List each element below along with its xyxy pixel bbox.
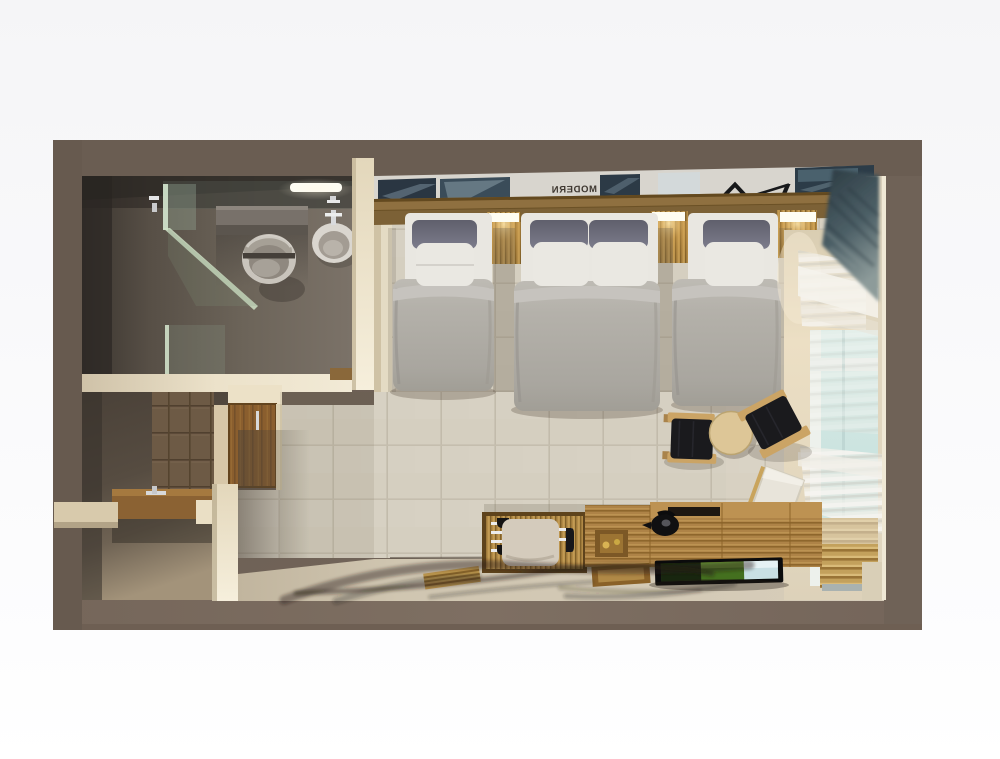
- svg-text:MODERN: MODERN: [551, 184, 597, 196]
